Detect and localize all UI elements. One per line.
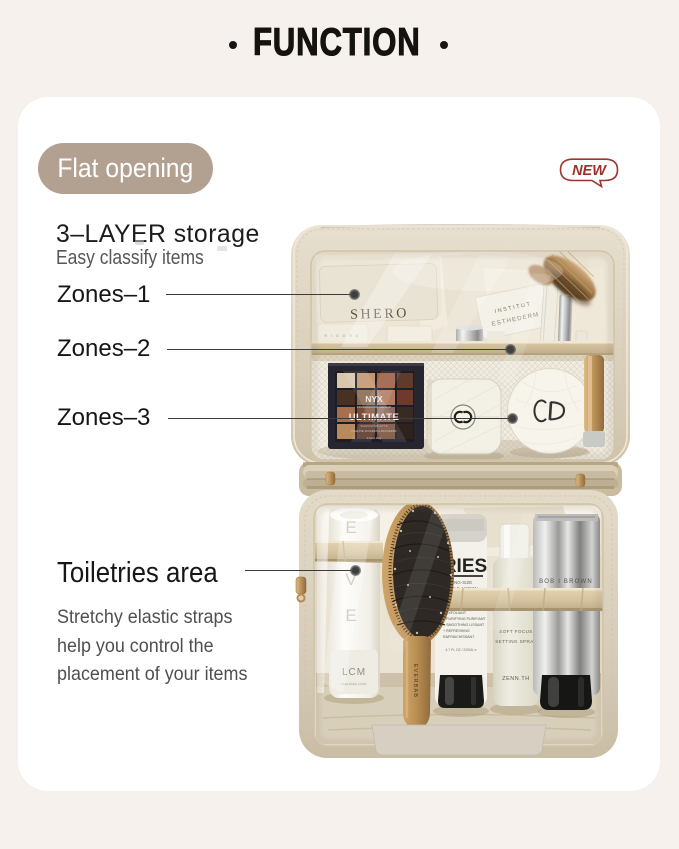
svg-text:4.7 FL OZ / 200ML e: 4.7 FL OZ / 200ML e: [445, 648, 476, 652]
svg-text:+ SMOOTHING LISSANT: + SMOOTHING LISSANT: [443, 623, 485, 627]
svg-text:EVERBAB: EVERBAB: [412, 664, 418, 698]
svg-text:CLEANSER 100ML: CLEANSER 100ML: [341, 682, 368, 686]
svg-text:BOB I BROWN: BOB I BROWN: [539, 579, 593, 585]
svg-text:RAFRAICHISSANT: RAFRAICHISSANT: [443, 635, 475, 639]
svg-text:+ REFRESHING: + REFRESHING: [443, 629, 470, 633]
svg-text:ZENN.TH: ZENN.TH: [502, 676, 530, 682]
svg-text:SETTING SPRAY: SETTING SPRAY: [495, 639, 537, 644]
svg-text:+ PURIFYING PURIFIANT: + PURIFYING PURIFIANT: [443, 617, 486, 621]
svg-text:SOFT FOCUS: SOFT FOCUS: [499, 629, 533, 634]
svg-text:NEW: NEW: [572, 163, 607, 179]
